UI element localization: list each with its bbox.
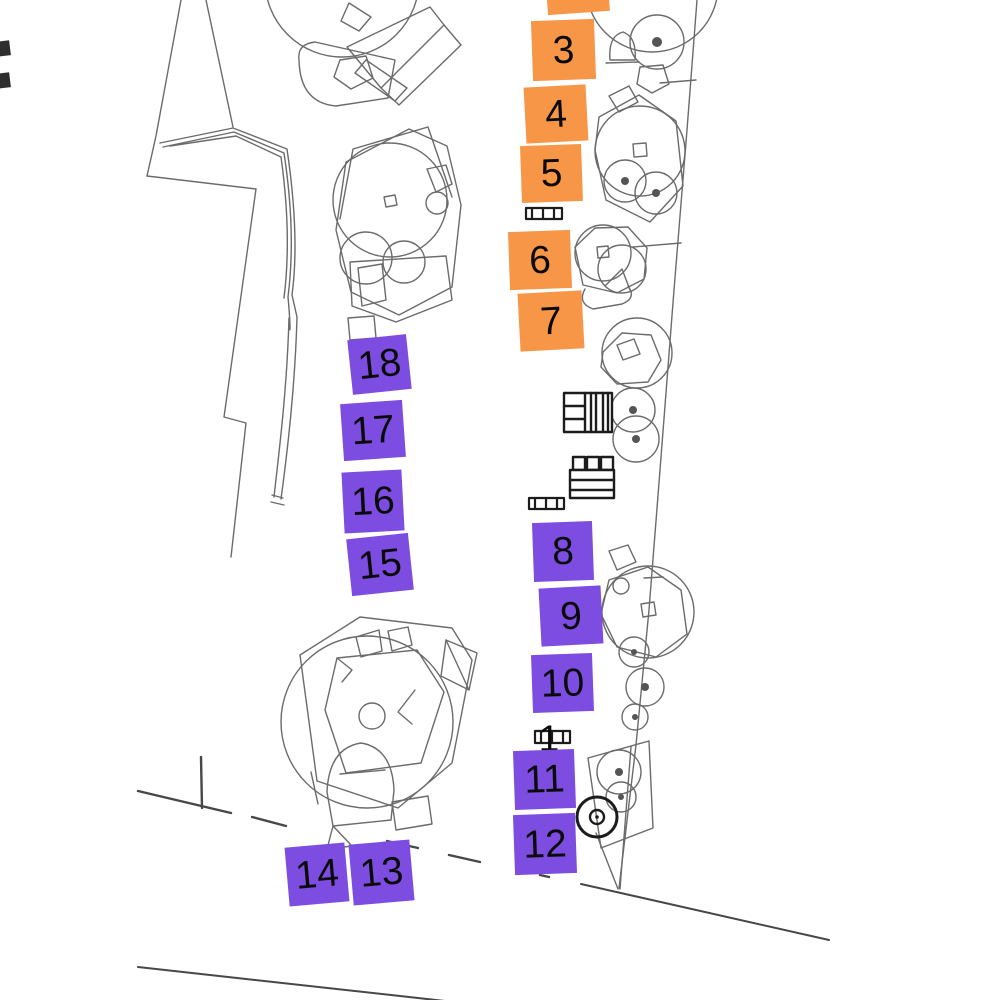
- top-right-trees: [586, 0, 718, 93]
- marker-13[interactable]: 13: [348, 839, 414, 905]
- marker-3[interactable]: 3: [531, 19, 596, 81]
- small-right-cluster: [601, 318, 672, 462]
- marker-14[interactable]: 14: [285, 842, 350, 906]
- marker-label: 6: [528, 240, 551, 280]
- marker-label: 18: [356, 343, 403, 386]
- marker-label: 11: [524, 759, 566, 799]
- marker-label: 14: [294, 853, 341, 896]
- marker-label: 8: [551, 532, 574, 572]
- marker-12[interactable]: 12: [513, 813, 577, 875]
- marker-label: 15: [356, 543, 403, 586]
- bench-icon: [529, 498, 564, 509]
- marker-label: 3: [552, 30, 575, 70]
- marker-label: 10: [540, 663, 585, 703]
- marker-9[interactable]: 9: [539, 585, 604, 646]
- marker-6[interactable]: 6: [508, 230, 572, 290]
- marker-label: 13: [358, 851, 405, 894]
- equipment-box-icon: [564, 393, 612, 432]
- top-center-structure: [265, 0, 461, 106]
- marker-8[interactable]: 8: [532, 521, 594, 582]
- marker-label: 7: [539, 301, 563, 341]
- equipment-boxes: [564, 393, 614, 498]
- marker-label: 5: [540, 154, 563, 194]
- left-boundary-lines: [147, 0, 297, 557]
- bold-circle-marker: [577, 797, 617, 837]
- equipment-box-icon: [570, 457, 614, 498]
- marker-15[interactable]: 15: [346, 533, 414, 596]
- site-plan-stage: 34567181716158910111121413: [0, 0, 1000, 1000]
- bottom-right-structure: [588, 741, 653, 848]
- mid-right-structure: [575, 225, 647, 309]
- mid-left-structure: [333, 127, 461, 340]
- upper-right-structure: [595, 86, 685, 222]
- marker-17[interactable]: 17: [340, 400, 406, 461]
- marker-7[interactable]: 7: [518, 290, 585, 351]
- bottom-left-structure: [281, 617, 477, 849]
- marker-18[interactable]: 18: [347, 334, 411, 395]
- marker-label: 16: [350, 481, 395, 522]
- marker-label: 12: [523, 824, 568, 864]
- edge-marks: [0, 40, 11, 88]
- marker-label: 4: [544, 94, 568, 134]
- marker-16[interactable]: 16: [341, 469, 404, 533]
- marker-5[interactable]: 5: [520, 144, 583, 203]
- marker-10[interactable]: 10: [531, 653, 594, 713]
- marker-label: 9: [559, 596, 583, 636]
- marker-4[interactable]: 4: [524, 84, 589, 143]
- marker-11[interactable]: 11: [513, 749, 576, 810]
- bench-icon: [526, 208, 562, 219]
- marker-label: 17: [350, 410, 396, 452]
- road-lines: [138, 757, 829, 1000]
- plan-linework: [0, 0, 1000, 1000]
